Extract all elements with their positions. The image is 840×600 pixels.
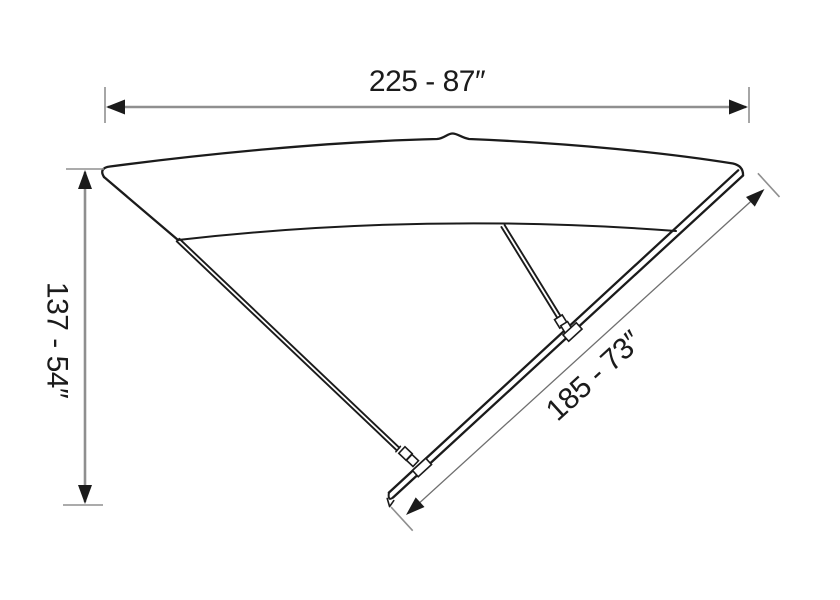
front-bow-arc — [178, 223, 676, 240]
canopy-left-edge — [104, 177, 178, 240]
arrowhead-right-icon — [729, 100, 748, 115]
canopy-top-edge — [102, 134, 743, 178]
bimini-top-dimension-diagram: 225 - 87″ 137 - 54″ 185 - 73″ — [0, 0, 840, 600]
diagonal-dimension-line — [408, 191, 763, 514]
front-bow-left-leg — [177, 239, 401, 452]
canopy — [102, 134, 743, 241]
tube-end-cap — [389, 493, 394, 499]
width-dimension: 225 - 87″ — [105, 65, 749, 123]
arrowhead-down-icon — [78, 485, 92, 504]
diagonal-dimension: 185 - 73″ — [391, 173, 779, 530]
left-strut-line-a — [177, 241, 397, 450]
center-strut-line-b — [505, 225, 561, 316]
width-dimension-label: 225 - 87″ — [369, 65, 486, 98]
center-strut-line-a — [501, 227, 557, 318]
main-aft-tube — [387, 170, 743, 506]
tube-fitting-left — [399, 447, 432, 477]
center-support-strut — [501, 225, 561, 319]
arrowhead-up-icon — [78, 170, 92, 189]
left-strut-line-b — [179, 239, 399, 448]
height-dimension-label: 137 - 54″ — [41, 282, 74, 399]
arrowhead-left-icon — [106, 100, 125, 115]
height-dimension: 137 - 54″ — [41, 169, 105, 505]
